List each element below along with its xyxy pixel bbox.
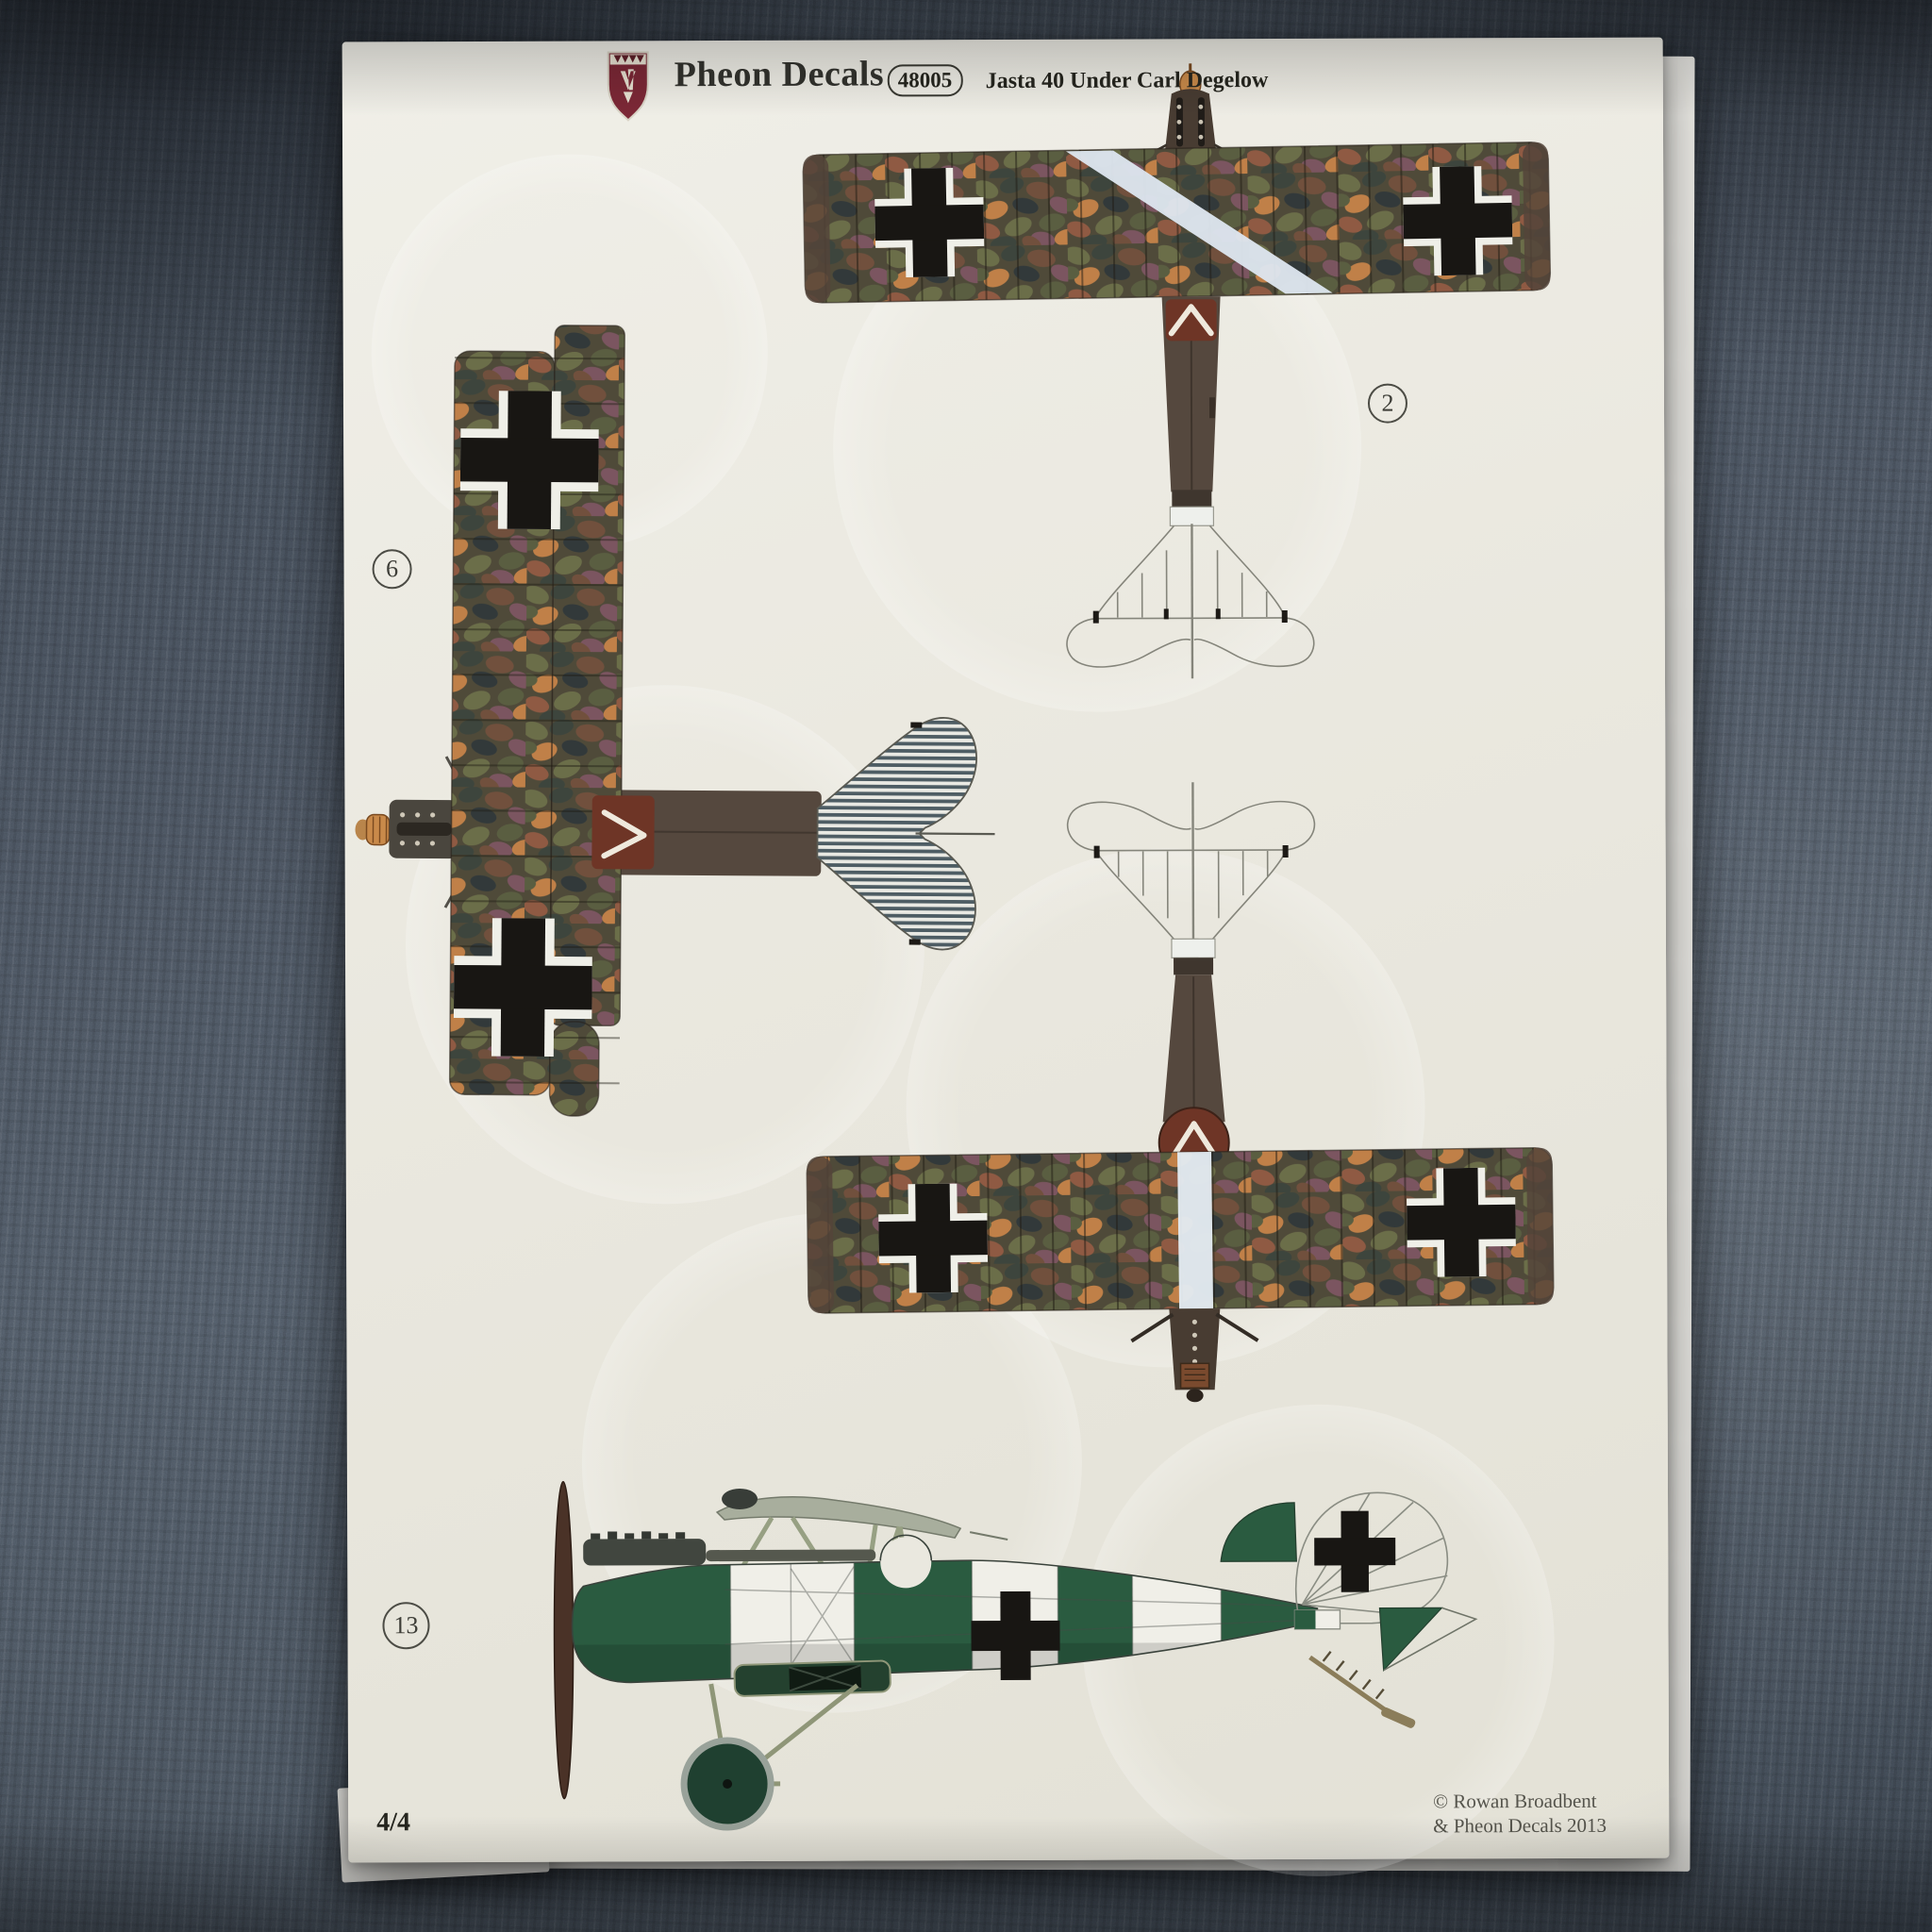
aircraft-13-side-profile: [554, 1478, 1476, 1827]
propeller: [554, 1482, 574, 1799]
scheme-number: 13: [393, 1611, 418, 1640]
scheme-label-13: 13: [382, 1602, 429, 1649]
engine: [583, 1539, 706, 1565]
aircraft-2-top-view: [803, 62, 1552, 680]
aircraft-profiles-artwork: [342, 38, 1670, 1863]
product-code-badge: 48005: [888, 64, 963, 96]
aircraft-6-plan-view: [353, 324, 998, 1119]
white-centre-panel: [1177, 1152, 1213, 1308]
scheme-number: 6: [386, 555, 398, 583]
decal-instruction-sheet: Pheon Decals 48005 Jasta 40 Under Carl D…: [342, 38, 1670, 1863]
cockpit-panel: [591, 795, 655, 869]
tail-skid: [1310, 1651, 1417, 1729]
scheme-label-2: 2: [1368, 384, 1407, 424]
copyright-line-2: & Pheon Decals 2013: [1433, 1813, 1607, 1839]
gun-deck: [706, 1549, 875, 1561]
engine-cowling: [1165, 89, 1216, 150]
sheet-title: Jasta 40 Under Carl Degelow: [986, 68, 1269, 94]
tailplane-wireframe: [1067, 782, 1314, 941]
lower-wing-edge: [734, 1660, 891, 1696]
copyright-notice: © Rowan Broadbent & Pheon Decals 2013: [1433, 1789, 1607, 1839]
cockpit-cutout: [880, 1537, 931, 1588]
copyright-line-1: © Rowan Broadbent: [1433, 1789, 1607, 1814]
scheme-label-6: 6: [373, 549, 412, 589]
tailplane: [1379, 1607, 1441, 1670]
lower-wing-lozenge: [807, 1148, 1554, 1314]
photographed-decal-sheet-scene: { "header": { "brand": "Pheon Decals", "…: [0, 0, 1932, 1932]
rudder-cross: [1314, 1511, 1395, 1592]
wing-lozenge-band: [449, 325, 625, 1116]
tailplane-wireframe: [1067, 524, 1314, 679]
pheon-shield-logo-icon: [608, 52, 648, 120]
fin: [1221, 1503, 1296, 1561]
brand-name: Pheon Decals: [675, 53, 885, 95]
radiator: [1181, 1363, 1209, 1388]
landing-gear: [684, 1684, 858, 1828]
scheme-number: 2: [1381, 390, 1393, 418]
upper-wing-lozenge: [803, 142, 1551, 303]
page-number: 4/4: [376, 1807, 410, 1838]
